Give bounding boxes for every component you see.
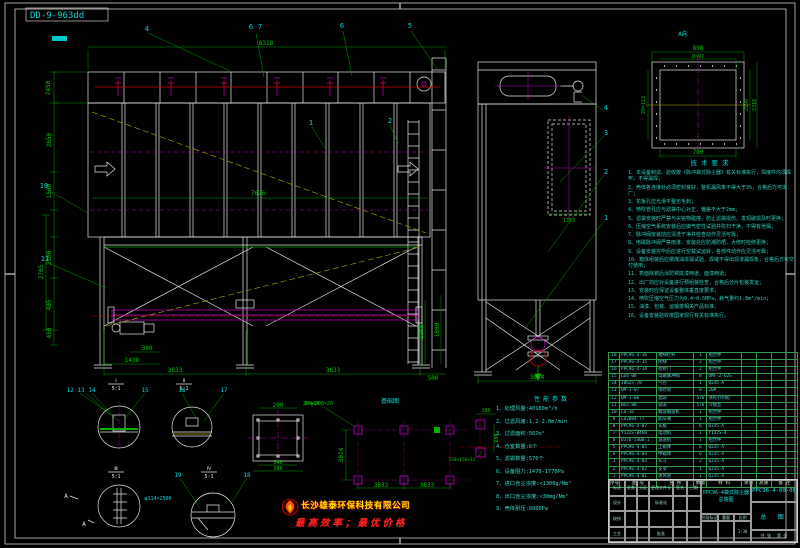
part-material: Q235-A — [707, 452, 741, 459]
svg-text:8=97: 8=97 — [692, 54, 704, 60]
part-remark — [771, 466, 797, 473]
part-qty: 1 — [694, 353, 707, 360]
part-material: 组合件 — [707, 409, 741, 416]
svg-text:450: 450 — [46, 327, 53, 338]
part-total-weight — [756, 381, 771, 388]
svg-text:A向: A向 — [678, 30, 688, 38]
doc-type: 总装图 — [718, 497, 733, 505]
technical-note: 1、本设备制造、验收按《脉冲袋式除尘器》有关标准执行，焊接件均须焊牢，不得漏焊； — [628, 170, 795, 183]
svg-text:Ⅰ: Ⅰ — [115, 378, 116, 384]
svg-text:1: 1 — [309, 119, 313, 127]
part-total-weight — [756, 445, 771, 452]
part-remark — [771, 367, 797, 374]
performance-item: 1、处理风量:40100m³/h — [496, 406, 608, 412]
part-qty: 1 — [694, 438, 707, 445]
part-unit-weight — [741, 416, 756, 423]
svg-text:20=113: 20=113 — [641, 96, 647, 114]
sheets-total: 共 张 — [761, 533, 771, 539]
part-qty: 1 — [694, 466, 707, 473]
svg-text:6: 6 — [249, 23, 253, 31]
part-no: 6 — [609, 438, 620, 445]
part-no: 2 — [609, 466, 620, 473]
foundation-anchors — [354, 420, 485, 484]
part-remark — [771, 409, 797, 416]
part-no: 8 — [609, 423, 620, 430]
front-elevation-lines — [88, 58, 446, 368]
svg-text:1353: 1353 — [563, 218, 575, 224]
svg-text:A: A — [82, 521, 86, 528]
label-sign: 签名 — [673, 480, 687, 496]
svg-text:700: 700 — [693, 149, 704, 156]
technical-note: 5、滤袋安装时严禁与尖锐物碰撞，防止滤袋损伤，发现破损及时更换； — [628, 216, 795, 222]
performance-item: 4、仓室数量:6个 — [496, 444, 608, 450]
part-no: 10 — [609, 409, 620, 416]
part-unit-weight — [741, 423, 756, 430]
part-no: 9 — [609, 416, 620, 423]
parts-table: 18 PPC96-4-16 楼梯栏杆 1 组合件 17 PPC96-4-15 爬… — [608, 352, 798, 488]
table-row: 17 PPC96-4-15 爬梯 2 组合件 — [609, 360, 798, 367]
technical-note: 14、喷吹压缩空气压力为0.4~0.5MPa，耗气量约1.8m³/min； — [628, 296, 795, 302]
svg-text:基础图: 基础图 — [381, 397, 399, 405]
parts-table-rows: 18 PPC96-4-16 楼梯栏杆 1 组合件 17 PPC96-4-15 爬… — [609, 353, 798, 481]
svg-text:3633: 3633 — [420, 482, 435, 489]
svg-text:200: 200 — [273, 402, 284, 409]
part-material: Q235-A — [707, 445, 741, 452]
svg-text:3: 3 — [604, 129, 608, 137]
detail-circles — [70, 384, 235, 537]
svg-text:3633: 3633 — [168, 367, 183, 374]
part-name: 滤袋 — [657, 395, 694, 402]
svg-text:500: 500 — [428, 375, 439, 382]
technical-note: 13、安装时应保证设备整体垂直度要求； — [628, 288, 795, 294]
technical-note: 11、表面除锈后涂防锈底漆两道，面漆两道； — [628, 271, 795, 277]
table-row: 7 Y132S-0460 电动机 1 Y132S-4 — [609, 431, 798, 438]
technical-note: 12、出厂前应对设备进行预组装检查，合格后分片包装发运； — [628, 280, 795, 286]
technical-note: 3、花板孔应光滑平整无毛刺； — [628, 199, 795, 205]
label-count: 处数 — [625, 480, 637, 496]
svg-text:3633: 3633 — [374, 482, 389, 489]
cyan-tag — [52, 36, 67, 41]
part-code: PPC96-4-15 — [620, 360, 657, 367]
part-total-weight — [756, 353, 771, 360]
technical-requirements: 技术要求 1、本设备制造、验收按《脉冲袋式除尘器》有关标准执行，焊接件均须焊牢，… — [628, 157, 795, 351]
part-code: PPC96-4-03 — [620, 459, 657, 466]
svg-text:2705: 2705 — [38, 264, 45, 279]
part-name: 灰斗 — [657, 459, 694, 466]
svg-text:1800: 1800 — [434, 322, 441, 337]
part-name: 电动机 — [657, 431, 694, 438]
svg-text:5:1: 5:1 — [204, 474, 213, 480]
part-total-weight — [756, 438, 771, 445]
part-unit-weight — [741, 374, 756, 381]
svg-text:808: 808 — [693, 45, 704, 52]
svg-text:100: 100 — [481, 408, 490, 414]
product-name: PPC96-4袋式除尘器 — [703, 490, 749, 498]
svg-text:4: 4 — [145, 25, 149, 33]
part-total-weight — [756, 395, 771, 402]
part-total-weight — [756, 388, 771, 395]
svg-text:3014: 3014 — [338, 447, 345, 462]
svg-text:11: 11 — [41, 255, 49, 263]
part-remark — [771, 445, 797, 452]
part-name: 上箱体 — [657, 445, 694, 452]
front-magenta — [90, 78, 428, 323]
svg-text:5: 5 — [408, 22, 412, 30]
part-qty: 1 — [694, 409, 707, 416]
part-no: 5 — [609, 445, 620, 452]
part-remark — [771, 423, 797, 430]
performance-title: 性能参数 — [496, 394, 608, 403]
part-total-weight — [756, 423, 771, 430]
table-row: 8 PPC96-4-07 花板 6 Q235-A — [609, 423, 798, 430]
part-qty: 8 — [694, 374, 707, 381]
table-row: 16 PPC96-4-14 检修门 2 组合件 — [609, 367, 798, 374]
performance-list: 1、处理风量:40100m³/h2、过滤风速:1.2-2.0m/min3、过滤面… — [496, 406, 608, 513]
svg-text:Ⅱ: Ⅱ — [183, 378, 185, 384]
part-qty: 1 — [694, 431, 707, 438]
part-material: 组合件 — [707, 438, 741, 445]
label-stage: 阶段标记 — [701, 514, 718, 521]
watermark-slogan: 最高效率；最优价格 — [295, 515, 408, 529]
part-total-weight — [756, 431, 771, 438]
svg-text:19: 19 — [174, 472, 182, 479]
part-total-weight — [756, 374, 771, 381]
svg-text:2318: 2318 — [752, 99, 758, 111]
part-remark — [771, 459, 797, 466]
svg-text:15: 15 — [141, 387, 149, 394]
part-material: 组合件 — [707, 360, 741, 367]
part-total-weight — [756, 416, 771, 423]
performance-item: 5、滤袋数量:576个 — [496, 456, 608, 462]
part-material: Q235-A — [707, 466, 741, 473]
part-no: 16 — [609, 367, 620, 374]
part-remark — [771, 402, 797, 409]
technical-note: 2、壳体各连接处必须密封良好，整机漏风率不得大于3%，合格后方可出厂； — [628, 185, 795, 198]
svg-text:580: 580 — [273, 466, 282, 472]
part-name: 爬梯 — [657, 360, 694, 367]
part-code: PPC96-4-02 — [620, 466, 657, 473]
performance-item: 8、出口含尘浓度:<30mg/Nm³ — [496, 494, 608, 500]
part-code: Y132S-0460 — [620, 431, 657, 438]
part-code: U176-5400-1 — [620, 438, 657, 445]
svg-text:2: 2 — [604, 168, 608, 176]
part-material: Q235-A — [707, 423, 741, 430]
technical-note: 10、箱体组装后应做煤油渗漏试验，焊缝不得出现渗漏现象，合格后方可交付使用； — [628, 257, 795, 270]
title-block-revision-area: 标记 处数 分区 更改文件号 签名 日期 设计 标准化 校核 工艺 批准 — [609, 480, 701, 542]
part-code: PPC96-4-04 — [620, 452, 657, 459]
part-qty: 576 — [694, 395, 707, 402]
part-unit-weight — [741, 360, 756, 367]
part-material: 组合件 — [707, 416, 741, 423]
title-block-number-area: PPC96-4-00-00 总 图 共 张 第 张 — [751, 480, 797, 542]
part-name: 卸灰阀 — [657, 416, 694, 423]
svg-text:5:1: 5:1 — [111, 474, 120, 480]
drawing-sheet: DD-9-963dd — [0, 0, 800, 548]
part-qty: 576 — [694, 402, 707, 409]
part-qty: 1 — [694, 416, 707, 423]
label-zone: 分区 — [637, 480, 649, 496]
svg-text:10: 10 — [40, 182, 48, 190]
part-remark — [771, 416, 797, 423]
title-block: 标记 处数 分区 更改文件号 签名 日期 设计 标准化 校核 工艺 批准 PPC… — [608, 479, 798, 543]
part-code: PPC96-4-16 — [620, 353, 657, 360]
technical-note: 6、压缩空气系统安装后应做气密性试验并吹扫干净，不得有泄漏； — [628, 224, 795, 230]
part-unit-weight — [741, 459, 756, 466]
part-remark — [771, 360, 797, 367]
part-material: 组合件 — [707, 367, 741, 374]
sheet-count-cell: 共 张 第 张 — [751, 530, 797, 542]
part-no: 4 — [609, 452, 620, 459]
part-unit-weight — [741, 409, 756, 416]
part-name: 气包 — [657, 381, 694, 388]
part-code: PPC96-4-07 — [620, 423, 657, 430]
part-no: 18 — [609, 353, 620, 360]
table-row: 2 PPC96-4-02 支架 1 Q235-A — [609, 466, 798, 473]
part-name: 中箱体 — [657, 452, 694, 459]
svg-text:390: 390 — [142, 345, 153, 352]
technical-note: 9、设备安装完毕后应进行空载试运转，各部件动作应灵活可靠； — [628, 249, 795, 255]
svg-text:150×150×12: 150×150×12 — [448, 457, 475, 463]
part-code: LD2004-77 — [620, 416, 657, 423]
table-row: 12 QM-1-06 滤袋 576 涤纶针刺毡 — [609, 395, 798, 402]
part-unit-weight — [741, 402, 756, 409]
part-material: DMF-Z-62S — [707, 374, 741, 381]
svg-text:5:1: 5:1 — [179, 386, 188, 392]
technical-note: 8、电磁脉冲阀严禁雨淋，安装处应防潮防晒，大修时检修更换； — [628, 240, 795, 246]
part-qty: 8 — [694, 388, 707, 395]
svg-text:2650: 2650 — [46, 132, 53, 147]
part-remark — [771, 374, 797, 381]
part-qty: 2 — [694, 459, 707, 466]
part-code: QM-1-06 — [620, 395, 657, 402]
part-total-weight — [756, 452, 771, 459]
svg-text:3633: 3633 — [326, 367, 341, 374]
part-code: PPC96-4-14 — [620, 367, 657, 374]
part-code: LD4-08 — [620, 374, 657, 381]
part-unit-weight — [741, 452, 756, 459]
part-material: Y132S-4 — [707, 431, 741, 438]
part-total-weight — [756, 402, 771, 409]
table-row: 10 LD-16 螺旋输送机 1 组合件 — [609, 409, 798, 416]
svg-text:Ⅲ: Ⅲ — [114, 466, 117, 472]
part-name: 螺旋输送机 — [657, 409, 694, 416]
svg-text:1438: 1438 — [125, 357, 140, 364]
technical-requirements-title: 技术要求 — [628, 157, 795, 167]
technical-note: 4、喷吹管孔应与滤袋中心对正，偏差不大于2mm； — [628, 207, 795, 213]
part-name: 喷吹管 — [657, 388, 694, 395]
part-name: 减速机 — [657, 438, 694, 445]
part-remark — [771, 431, 797, 438]
table-row: 13 QM-1-07 喷吹管 8 20# — [609, 388, 798, 395]
drawing-number: PPC96-4-00-00 — [751, 480, 797, 502]
svg-text:200×200×20: 200×200×20 — [303, 401, 333, 407]
svg-text:17: 17 — [220, 387, 228, 394]
technical-note: 15、油漆、包装、运输按相关产品标准； — [628, 304, 795, 310]
part-qty: 6 — [694, 445, 707, 452]
performance-item: 3、过滤面积:567m² — [496, 431, 608, 437]
part-remark — [771, 381, 797, 388]
part-qty: 1 — [694, 381, 707, 388]
part-total-weight — [756, 466, 771, 473]
part-qty: 2 — [694, 367, 707, 374]
label-change-doc: 更改文件号 — [649, 480, 673, 496]
part-code: JB625-78 — [620, 381, 657, 388]
svg-text:12 13 14: 12 13 14 — [67, 387, 96, 394]
part-unit-weight — [741, 395, 756, 402]
part-total-weight — [756, 459, 771, 466]
part-remark — [771, 395, 797, 402]
part-remark — [771, 353, 797, 360]
part-no: 14 — [609, 381, 620, 388]
part-material: 组合件 — [707, 353, 741, 360]
detail-circles-color — [100, 405, 210, 449]
drawing-type: 总 图 — [751, 502, 797, 530]
svg-text:5:1: 5:1 — [111, 386, 120, 392]
part-unit-weight — [741, 438, 756, 445]
part-name: 支架 — [657, 466, 694, 473]
table-row: 11 HG5-88 袋笼 576 冷拔丝 — [609, 402, 798, 409]
part-no: 13 — [609, 388, 620, 395]
performance-item: 7、进口含尘浓度:<1300g/Nm³ — [496, 481, 608, 487]
part-qty: 6 — [694, 452, 707, 459]
part-name: 袋笼 — [657, 402, 694, 409]
part-unit-weight — [741, 445, 756, 452]
part-total-weight — [756, 360, 771, 367]
label-mark: 标记 — [609, 480, 625, 496]
part-unit-weight — [741, 381, 756, 388]
label-weight: 重量 — [718, 514, 735, 521]
part-code: LD-16 — [620, 409, 657, 416]
label-craft: 工艺 — [609, 527, 625, 543]
label-design: 设计 — [609, 496, 625, 512]
part-total-weight — [756, 409, 771, 416]
part-name: 检修门 — [657, 367, 694, 374]
svg-text:φ114×2500: φ114×2500 — [144, 496, 171, 502]
part-remark — [771, 452, 797, 459]
part-no: 3 — [609, 459, 620, 466]
svg-text:7: 7 — [258, 23, 262, 31]
technical-requirements-list: 1、本设备制造、验收按《脉冲袋式除尘器》有关标准执行，焊接件均须焊牢，不得漏焊；… — [628, 170, 795, 319]
svg-text:2450: 2450 — [45, 80, 52, 95]
part-unit-weight — [741, 431, 756, 438]
part-code: QM-1-07 — [620, 388, 657, 395]
svg-text:18: 18 — [243, 472, 251, 479]
svg-text:8318: 8318 — [259, 40, 274, 47]
table-row: 4 PPC96-4-04 中箱体 6 Q235-A — [609, 452, 798, 459]
performance-item: 2、过滤风速:1.2-2.0m/min — [496, 419, 608, 425]
front-yellow — [92, 112, 426, 326]
part-name: 电磁脉冲阀 — [657, 374, 694, 381]
table-row: 3 PPC96-4-03 灰斗 2 Q235-A — [609, 459, 798, 466]
part-unit-weight — [741, 466, 756, 473]
technical-note: 7、脉冲阀安装前应清洗干净并检查动作灵活可靠； — [628, 232, 795, 238]
part-material: Q235-A — [707, 381, 741, 388]
label-scale: 比例 — [734, 514, 751, 521]
label-approve: 批准 — [649, 527, 673, 543]
part-material: Q235-A — [707, 459, 741, 466]
part-material: 涤纶针刺毡 — [707, 395, 741, 402]
table-row: 18 PPC96-4-16 楼梯栏杆 1 组合件 — [609, 353, 798, 360]
part-remark — [771, 388, 797, 395]
table-row: 6 U176-5400-1 减速机 1 组合件 — [609, 438, 798, 445]
title-block-name-area: PPC96-4袋式除尘器 总装图 阶段标记 重量 比例 1:30 — [701, 480, 751, 542]
flange-centerlines — [646, 56, 750, 154]
table-row: 14 JB625-78 气包 1 Q235-A — [609, 381, 798, 388]
label-check: 校核 — [609, 511, 625, 527]
company-logo-icon — [282, 499, 298, 515]
side-red — [530, 350, 546, 366]
svg-text:6: 6 — [340, 22, 344, 30]
svg-text:A: A — [64, 493, 68, 500]
part-qty: 6 — [694, 423, 707, 430]
svg-text:1200: 1200 — [418, 324, 425, 339]
part-total-weight — [756, 367, 771, 374]
svg-text:3014: 3014 — [530, 374, 545, 381]
table-row: 9 LD2004-77 卸灰阀 1 组合件 — [609, 416, 798, 423]
technical-note: 16、设备安装验收按国家现行有关标准执行。 — [628, 313, 795, 319]
part-code: PPC96-4-05 — [620, 445, 657, 452]
part-no: 7 — [609, 431, 620, 438]
side-elevation-lines — [474, 62, 602, 375]
flow-arrow-left — [95, 162, 115, 176]
doc-label-box: DD-9-963dd — [26, 8, 108, 41]
part-material: 20# — [707, 388, 741, 395]
sheet-number: 第 张 — [777, 533, 787, 539]
doc-label: DD-9-963dd — [30, 11, 84, 21]
watermark-company: 长沙雄泰环保科技有限公司 — [301, 499, 410, 511]
label-date: 日期 — [687, 480, 701, 496]
part-no: 15 — [609, 374, 620, 381]
performance-parameters: 性能参数 1、处理风量:40100m³/h2、过滤风速:1.2-2.0m/min… — [496, 394, 608, 522]
part-name: 花板 — [657, 423, 694, 430]
part-material: 冷拔丝 — [707, 402, 741, 409]
svg-text:2: 2 — [388, 117, 392, 125]
svg-text:7626: 7626 — [251, 190, 266, 197]
svg-text:Ⅳ: Ⅳ — [207, 466, 212, 472]
part-no: 17 — [609, 360, 620, 367]
svg-text:405: 405 — [46, 299, 53, 310]
part-name: 楼梯栏杆 — [657, 353, 694, 360]
table-row: 15 LD4-08 电磁脉冲阀 8 DMF-Z-62S — [609, 374, 798, 381]
part-no: 11 — [609, 402, 620, 409]
part-qty: 2 — [694, 360, 707, 367]
svg-text:1: 1 — [604, 214, 608, 222]
part-code: HG5-88 — [620, 402, 657, 409]
part-unit-weight — [741, 353, 756, 360]
table-row: 5 PPC96-4-05 上箱体 6 Q235-A — [609, 445, 798, 452]
product-name-cell: PPC96-4袋式除尘器 总装图 — [701, 480, 751, 514]
label-standardization: 标准化 — [649, 496, 673, 512]
svg-text:4: 4 — [604, 104, 608, 112]
part-no: 12 — [609, 395, 620, 402]
part-unit-weight — [741, 367, 756, 374]
svg-text:2190: 2190 — [744, 99, 750, 111]
part-remark — [771, 438, 797, 445]
performance-item: 6、设备阻力:1470-1770Pa — [496, 469, 608, 475]
part-unit-weight — [741, 388, 756, 395]
scale-value: 1:30 — [734, 521, 751, 542]
performance-item: 9、壳体耐压:6860Pa — [496, 506, 608, 512]
